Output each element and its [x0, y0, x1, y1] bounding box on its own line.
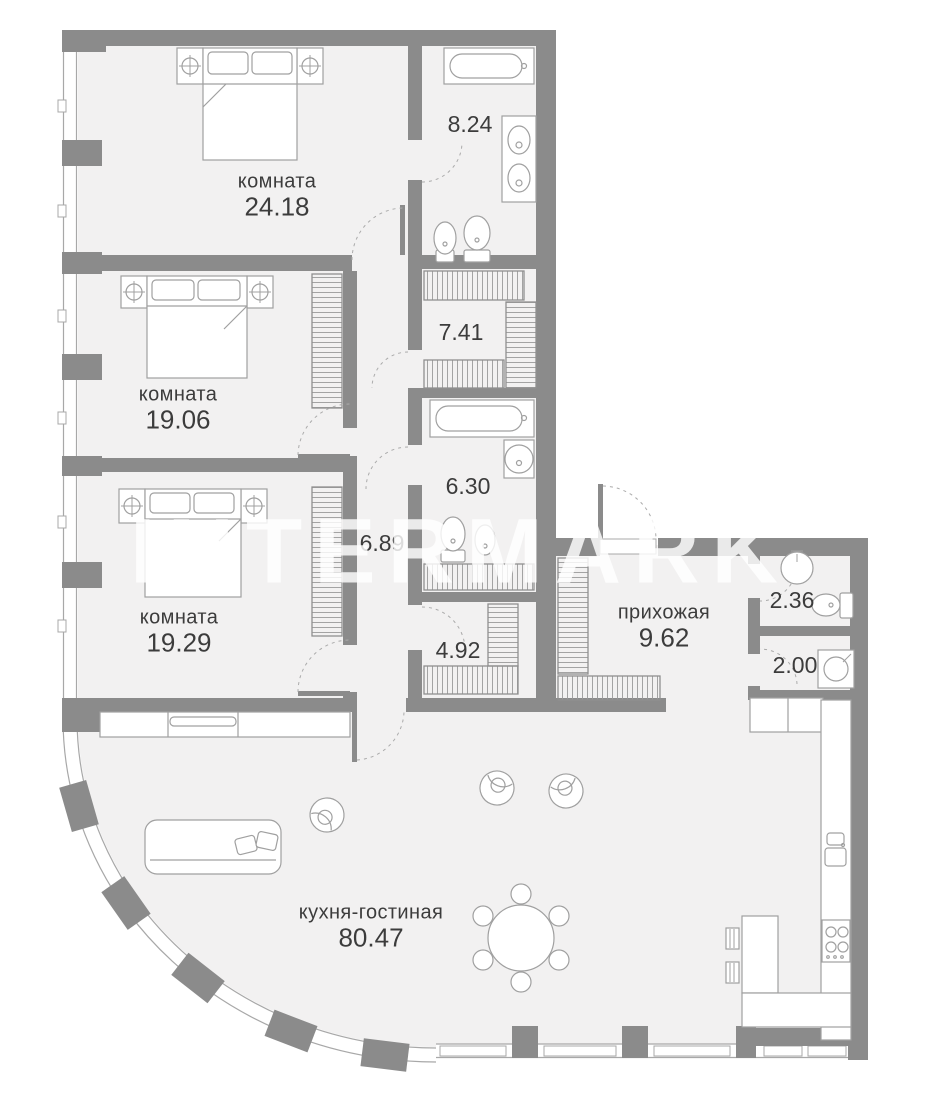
room-label-bedroom-3: комната19.29: [140, 606, 218, 658]
washing-machine: [818, 650, 854, 688]
room-label-laundry: 2.00: [773, 653, 818, 679]
sofa: [145, 820, 281, 874]
room-label-corridor: 6.89: [360, 531, 405, 557]
room-label-closet-2: 4.92: [436, 638, 481, 664]
floor-plan: комната24.18 комната19.06 комната19.29 к…: [0, 0, 928, 1112]
room-label-bathroom-main: 8.24: [448, 112, 493, 138]
room-label-walkin-closet: 7.41: [439, 320, 484, 346]
room-label-bedroom-2: комната19.06: [139, 383, 217, 435]
room-label-wc: 2.36: [770, 588, 815, 614]
sideboard: [100, 712, 350, 737]
room-label-bathroom-2: 6.30: [446, 474, 491, 500]
floor-plan-svg: [0, 0, 928, 1112]
room-label-bedroom-1: комната24.18: [238, 170, 316, 222]
bottom-window-wall: [436, 1044, 866, 1058]
room-label-kitchen-living: кухня-гостиная80.47: [299, 901, 443, 953]
room-label-hallway: прихожая9.62: [618, 601, 710, 653]
